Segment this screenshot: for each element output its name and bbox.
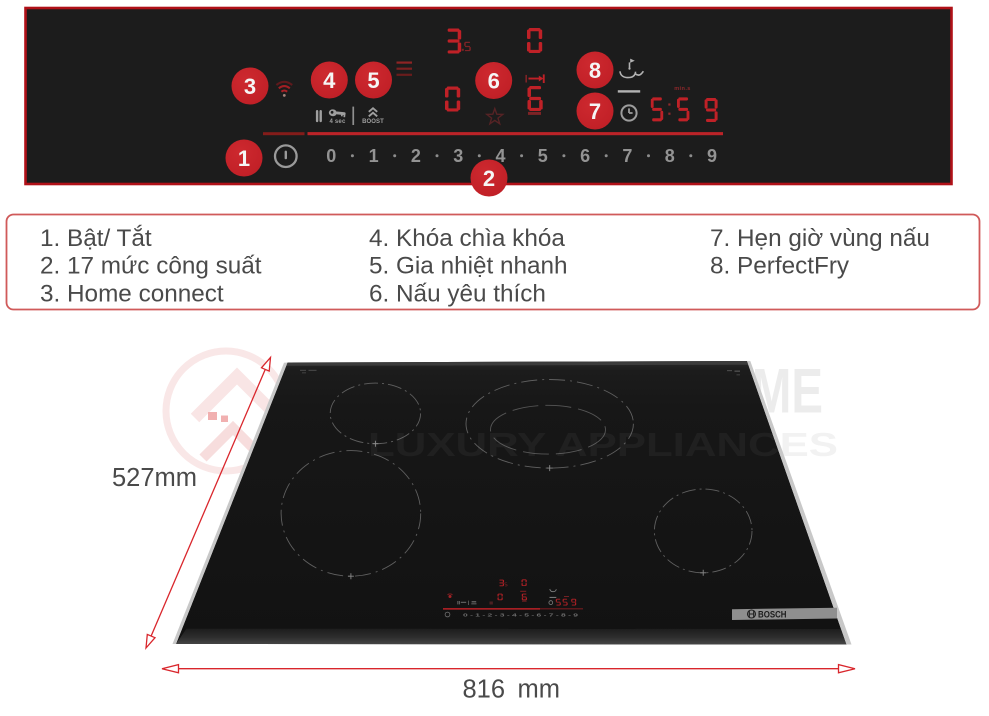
svg-text:LUXURY APPLIANCES: LUXURY APPLIANCES <box>368 427 838 464</box>
svg-text:8: 8 <box>589 58 601 83</box>
svg-text:mm: mm <box>518 676 560 704</box>
svg-text:4 sec: 4 sec <box>329 119 345 125</box>
svg-text:4. Khóa chìa khóa: 4. Khóa chìa khóa <box>369 225 565 252</box>
svg-text:6: 6 <box>488 69 500 94</box>
svg-text:6: 6 <box>580 146 590 166</box>
svg-text:4: 4 <box>323 68 336 93</box>
svg-text:527mm: 527mm <box>112 464 197 492</box>
svg-text:3: 3 <box>453 146 463 166</box>
svg-text:0: 0 <box>326 146 336 166</box>
svg-text:9: 9 <box>707 146 717 166</box>
svg-text:816: 816 <box>463 676 506 704</box>
svg-text:1. Bật/ Tắt: 1. Bật/ Tắt <box>40 225 152 252</box>
svg-text:2. 17 mức công suất: 2. 17 mức công suất <box>40 253 262 280</box>
svg-text:0 - 1 - 2 - 3 - 4 - 5 - 6 - 7: 0 - 1 - 2 - 3 - 4 - 5 - 6 - 7 - 8 - 9 <box>463 612 579 617</box>
svg-text:1: 1 <box>238 146 250 171</box>
svg-text:5: 5 <box>538 146 548 166</box>
svg-text:min.s: min.s <box>674 86 691 92</box>
svg-text:2: 2 <box>483 166 495 191</box>
svg-text:1: 1 <box>369 146 379 166</box>
svg-text:8: 8 <box>665 146 675 166</box>
svg-text:7. Hẹn giờ vùng nấu: 7. Hẹn giờ vùng nấu <box>710 225 930 252</box>
svg-text:2: 2 <box>411 146 421 166</box>
svg-text:3. Home connect: 3. Home connect <box>40 280 224 307</box>
svg-text:8. PerfectFry: 8. PerfectFry <box>710 253 850 280</box>
svg-text:7: 7 <box>622 146 632 166</box>
svg-text:7: 7 <box>589 99 601 124</box>
svg-text:5. Gia nhiệt nhanh: 5. Gia nhiệt nhanh <box>369 253 568 280</box>
svg-text:6. Nấu yêu thích: 6. Nấu yêu thích <box>369 280 546 307</box>
svg-text:BOSCH: BOSCH <box>758 609 787 619</box>
svg-text:BOOST: BOOST <box>362 119 384 125</box>
svg-text:5: 5 <box>367 68 379 93</box>
svg-text:3: 3 <box>244 74 256 99</box>
